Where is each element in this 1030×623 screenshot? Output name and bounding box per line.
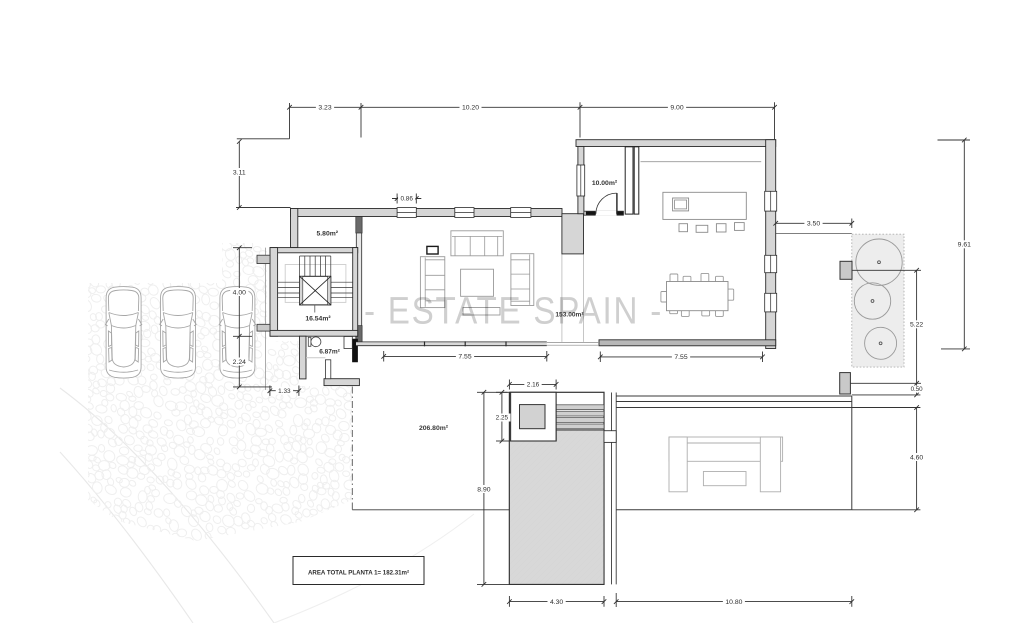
svg-text:7.55: 7.55 — [458, 354, 471, 361]
svg-text:0.50: 0.50 — [911, 386, 924, 393]
svg-text:16.54m²: 16.54m² — [305, 315, 331, 322]
svg-text:- ESTATE SPAIN -: - ESTATE SPAIN - — [364, 291, 663, 333]
svg-text:5.80m²: 5.80m² — [317, 230, 339, 237]
svg-text:3.23: 3.23 — [318, 105, 331, 112]
svg-text:5.22: 5.22 — [910, 322, 923, 329]
svg-text:6.87m²: 6.87m² — [319, 349, 340, 356]
svg-text:AREA TOTAL PLANTA 1= 182.31m²: AREA TOTAL PLANTA 1= 182.31m² — [308, 570, 409, 577]
svg-text:9.61: 9.61 — [958, 242, 971, 249]
svg-text:1.33: 1.33 — [278, 388, 291, 395]
svg-text:3.50: 3.50 — [807, 221, 820, 228]
svg-text:4.60: 4.60 — [910, 454, 923, 461]
svg-text:4.30: 4.30 — [550, 599, 563, 606]
svg-text:4.00: 4.00 — [233, 289, 246, 296]
svg-text:2.25: 2.25 — [496, 415, 509, 422]
svg-text:7.55: 7.55 — [674, 354, 687, 361]
svg-text:10.80: 10.80 — [725, 599, 742, 606]
svg-text:9.00: 9.00 — [670, 105, 683, 112]
svg-text:206.80m²: 206.80m² — [419, 425, 449, 432]
svg-text:2.24: 2.24 — [233, 359, 246, 366]
svg-text:10.00m²: 10.00m² — [592, 180, 618, 187]
svg-text:8.90: 8.90 — [477, 486, 490, 493]
svg-text:0.86: 0.86 — [400, 196, 413, 203]
svg-text:2.16: 2.16 — [527, 382, 540, 389]
svg-text:10.20: 10.20 — [462, 105, 479, 112]
svg-text:3.11: 3.11 — [233, 169, 246, 176]
